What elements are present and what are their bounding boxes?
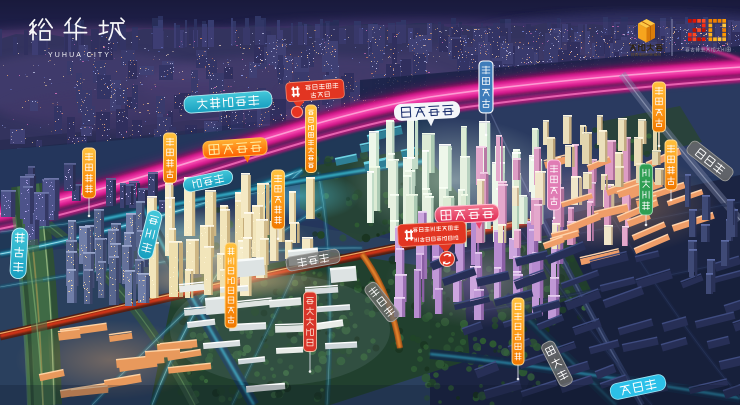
svg-text:YUHUA CITY: YUHUA CITY <box>48 52 111 59</box>
